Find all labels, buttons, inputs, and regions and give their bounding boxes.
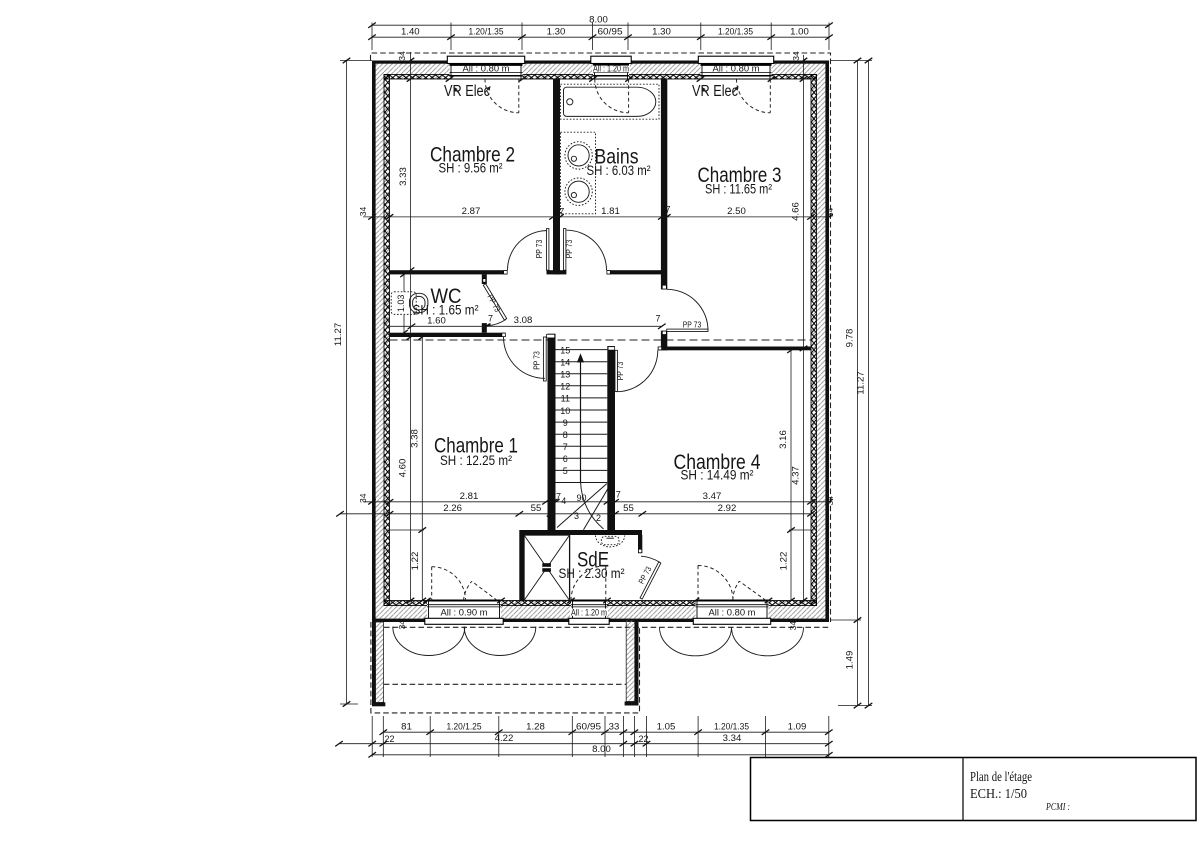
svg-text:34: 34 [791,51,801,61]
svg-text:7: 7 [488,314,493,324]
svg-text:SH : 6.03 m²: SH : 6.03 m² [587,163,651,178]
svg-text:1.20/1.35: 1.20/1.35 [718,26,753,37]
svg-text:4: 4 [561,496,566,506]
svg-text:All : 0.80 m: All : 0.80 m [463,64,510,74]
svg-text:1.00: 1.00 [790,26,809,37]
svg-text:1.09: 1.09 [788,721,807,732]
svg-text:55: 55 [531,503,542,514]
svg-text:1.81: 1.81 [601,206,620,217]
svg-text:34: 34 [825,496,835,506]
svg-text:1.03: 1.03 [396,295,406,313]
svg-text:2: 2 [596,513,601,523]
svg-text:1.30: 1.30 [547,26,566,37]
svg-text:10: 10 [560,406,570,416]
svg-text:60/95: 60/95 [576,721,601,732]
svg-text:11: 11 [561,394,570,404]
svg-text:SH : 14.49 m²: SH : 14.49 m² [681,468,754,483]
svg-text:3.38: 3.38 [409,429,420,448]
svg-text:9: 9 [563,418,568,428]
svg-text:1.40: 1.40 [401,26,420,37]
svg-text:All : 1.20 m: All : 1.20 m [571,607,607,617]
svg-text:SH : 11.65 m²: SH : 11.65 m² [705,182,772,197]
svg-text:7: 7 [655,314,660,324]
svg-text:PP 73: PP 73 [532,351,541,370]
svg-text:3: 3 [574,511,579,521]
svg-text:7: 7 [616,489,621,499]
svg-text:34: 34 [358,207,368,217]
svg-text:SH : 9.56 m²: SH : 9.56 m² [439,161,503,176]
svg-text:PP 73: PP 73 [616,361,625,380]
svg-text:All : 1.20 m: All : 1.20 m [593,64,629,74]
svg-text:2.87: 2.87 [462,206,481,217]
svg-text:SH : 12.25 m²: SH : 12.25 m² [440,453,512,468]
svg-text:12: 12 [560,382,570,392]
svg-text:90: 90 [576,493,586,503]
svg-text:1.49: 1.49 [845,651,856,670]
svg-text:9.78: 9.78 [845,329,856,348]
svg-text:All : 0.90 m: All : 0.90 m [441,607,488,617]
svg-text:81: 81 [401,721,412,732]
svg-text:34: 34 [788,621,798,631]
svg-text:1.20/1.35: 1.20/1.35 [714,721,749,732]
svg-text:22: 22 [385,734,395,744]
svg-text:2.50: 2.50 [727,206,746,217]
svg-text:4.22: 4.22 [495,733,514,744]
svg-text:1.22: 1.22 [779,552,790,571]
svg-text:PCMI :: PCMI : [1045,802,1070,813]
svg-text:VR Elec: VR Elec [692,83,738,100]
svg-text:Plan de l'étage: Plan de l'étage [970,769,1032,784]
svg-text:All : 0.80 m: All : 0.80 m [713,64,760,74]
svg-text:1.05: 1.05 [657,721,676,732]
svg-text:8: 8 [563,430,568,440]
svg-text:55: 55 [623,503,634,514]
svg-text:6: 6 [563,454,568,464]
svg-text:PP 73: PP 73 [683,320,702,329]
svg-text:1.28: 1.28 [526,721,545,732]
svg-text:3.47: 3.47 [703,491,722,502]
svg-text:1.22: 1.22 [410,552,421,571]
svg-text:1.30: 1.30 [652,26,671,37]
svg-text:All : 0.80 m: All : 0.80 m [709,607,756,617]
svg-text:VR Elec: VR Elec [444,83,490,100]
svg-text:7: 7 [563,442,568,452]
svg-text:SH : 2.30 m²: SH : 2.30 m² [559,566,625,581]
svg-text:34: 34 [397,51,407,61]
svg-text:7: 7 [556,491,561,501]
svg-text:SH : 1.65 m²: SH : 1.65 m² [413,303,479,318]
svg-text:2.81: 2.81 [460,491,479,502]
svg-text:14: 14 [560,357,570,367]
svg-text:1.20/1.35: 1.20/1.35 [469,26,504,37]
svg-text:3.16: 3.16 [778,430,789,449]
svg-text:4.66: 4.66 [791,202,802,221]
svg-text:4.60: 4.60 [398,459,409,478]
svg-text:7: 7 [665,204,670,214]
svg-text:2.26: 2.26 [443,503,462,514]
svg-text:ECH.: 1/50: ECH.: 1/50 [970,786,1027,801]
svg-text:11.27: 11.27 [856,371,867,394]
svg-text:8.00: 8.00 [592,744,611,755]
svg-text:34: 34 [358,493,368,503]
svg-text:22: 22 [639,734,649,744]
svg-text:15: 15 [560,345,570,355]
svg-text:PP 73: PP 73 [565,239,574,258]
svg-text:60/95: 60/95 [598,26,623,37]
svg-text:7: 7 [559,206,564,216]
svg-text:33: 33 [609,721,620,732]
svg-text:3.34: 3.34 [723,733,742,744]
svg-text:4.37: 4.37 [791,466,802,485]
svg-text:3.33: 3.33 [398,167,409,186]
svg-text:34: 34 [825,208,835,218]
svg-text:34: 34 [397,620,407,630]
svg-text:1.20/1.25: 1.20/1.25 [447,721,482,732]
svg-text:2.92: 2.92 [718,503,737,514]
svg-text:13: 13 [560,370,570,380]
svg-text:3.08: 3.08 [514,315,533,326]
svg-text:11.27: 11.27 [333,323,344,346]
svg-text:PP 73: PP 73 [535,239,544,258]
svg-text:5: 5 [563,466,568,476]
svg-text:8.00: 8.00 [589,14,608,25]
